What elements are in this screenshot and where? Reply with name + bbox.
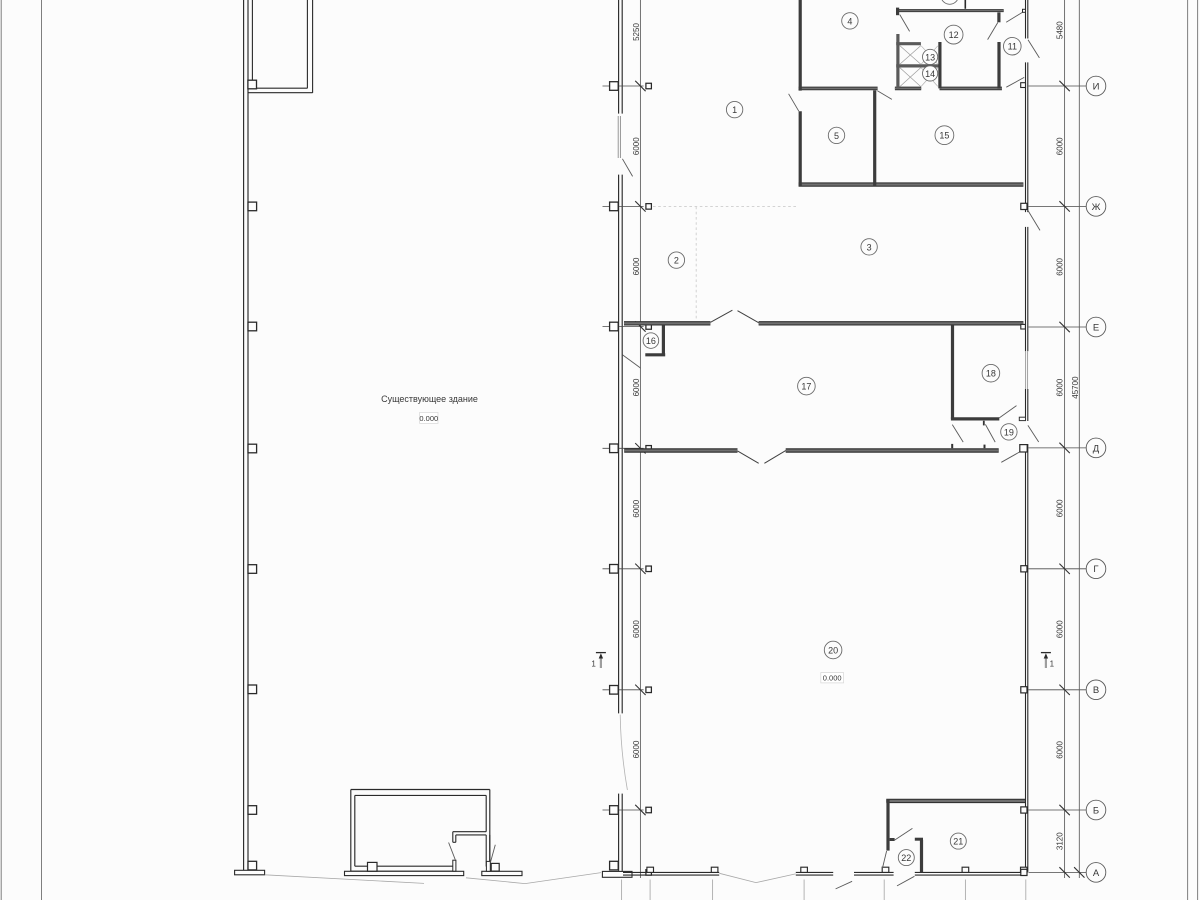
svg-text:5480: 5480 (1055, 21, 1064, 39)
svg-text:22: 22 (901, 853, 911, 863)
svg-text:6000: 6000 (632, 499, 641, 517)
svg-text:15: 15 (939, 131, 949, 141)
svg-text:6000: 6000 (1055, 378, 1064, 396)
svg-text:0.000: 0.000 (419, 414, 438, 423)
svg-text:13: 13 (925, 52, 935, 62)
svg-text:1: 1 (1050, 660, 1055, 669)
svg-text:6000: 6000 (1055, 620, 1064, 638)
svg-text:6000: 6000 (632, 137, 641, 155)
svg-text:1: 1 (591, 660, 596, 669)
svg-text:1: 1 (732, 105, 737, 115)
svg-text:6000: 6000 (1055, 137, 1064, 155)
svg-text:А: А (1093, 868, 1100, 879)
svg-text:Е: Е (1093, 322, 1099, 333)
svg-text:3: 3 (867, 242, 872, 252)
svg-text:16: 16 (646, 336, 656, 346)
svg-text:Д: Д (1093, 443, 1100, 454)
svg-text:И: И (1093, 81, 1100, 92)
svg-text:Г: Г (1093, 564, 1098, 575)
svg-text:6000: 6000 (632, 378, 641, 396)
svg-text:18: 18 (986, 369, 996, 379)
svg-text:12: 12 (949, 30, 959, 40)
svg-text:17: 17 (801, 382, 811, 392)
svg-text:Ж: Ж (1092, 202, 1101, 213)
svg-text:0.000: 0.000 (823, 673, 842, 682)
svg-text:6000: 6000 (632, 257, 641, 275)
svg-text:45700: 45700 (1071, 376, 1080, 399)
svg-text:2: 2 (674, 256, 679, 266)
svg-text:Существующее здание: Существующее здание (381, 394, 478, 404)
svg-text:6000: 6000 (632, 620, 641, 638)
svg-text:В: В (1093, 685, 1099, 696)
svg-text:6000: 6000 (1055, 257, 1064, 275)
svg-text:19: 19 (1004, 427, 1014, 437)
svg-text:14: 14 (925, 69, 935, 79)
svg-text:Б: Б (1093, 805, 1099, 816)
svg-text:20: 20 (828, 645, 838, 655)
svg-text:5: 5 (834, 131, 839, 141)
svg-text:3120: 3120 (1055, 832, 1064, 850)
svg-text:4: 4 (847, 16, 852, 26)
svg-text:6000: 6000 (632, 740, 641, 758)
svg-text:11: 11 (1008, 42, 1017, 52)
svg-text:21: 21 (953, 837, 963, 847)
svg-text:6000: 6000 (1055, 499, 1064, 517)
svg-text:6000: 6000 (1055, 740, 1064, 758)
svg-text:5250: 5250 (632, 23, 641, 41)
